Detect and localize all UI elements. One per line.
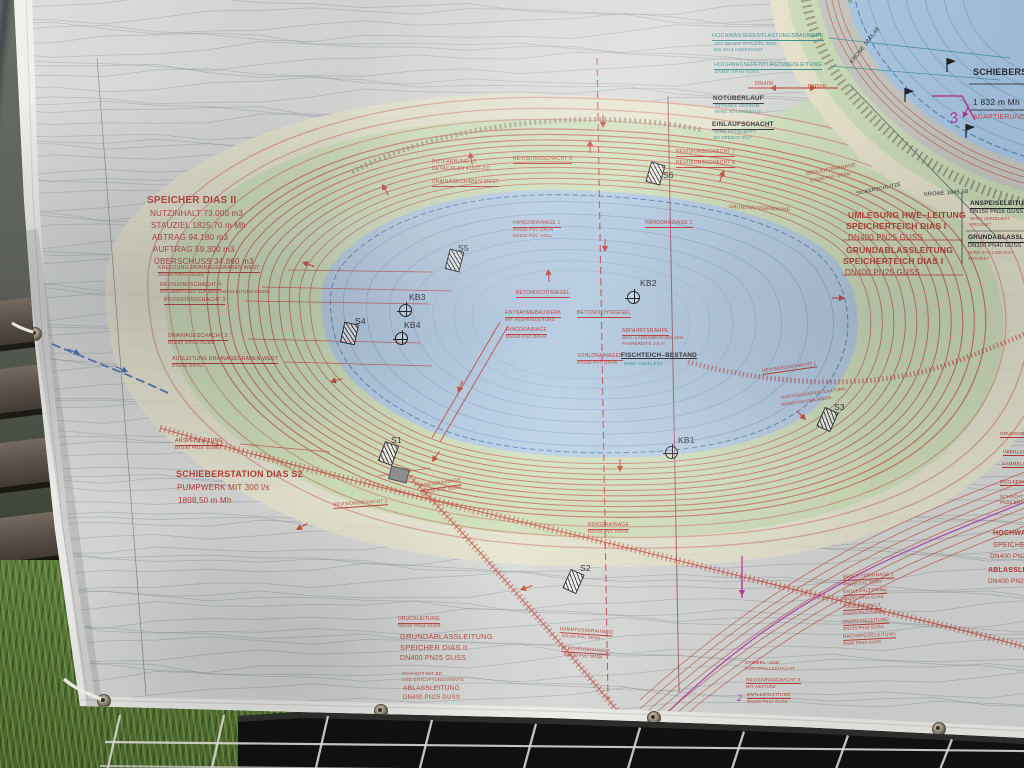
eyelet [97, 694, 111, 708]
map-surface [0, 0, 1024, 768]
map-banner: SPEICHER DIAS IINUTZINHALT 73.000 m3STAU… [0, 0, 1024, 768]
photo-of-map-banner: { "map": { "colors": { "red": "#b93a31",… [0, 0, 1024, 768]
